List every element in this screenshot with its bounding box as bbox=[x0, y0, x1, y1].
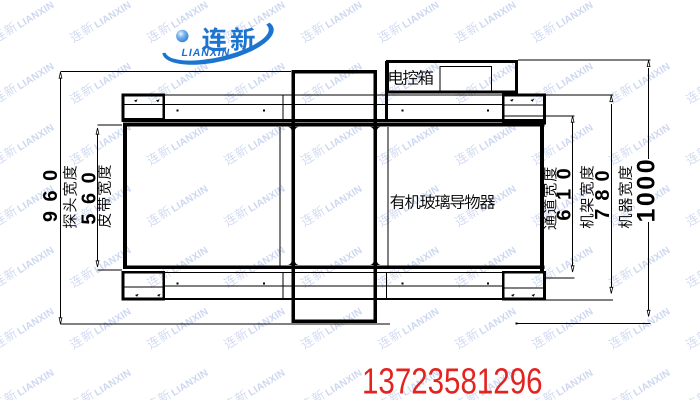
svg-text:LIANXIN: LIANXIN bbox=[478, 61, 519, 92]
svg-text:LIANXIN: LIANXIN bbox=[555, 306, 596, 337]
svg-text:LIANXIN: LIANXIN bbox=[555, 122, 596, 153]
svg-text:LIANXIN: LIANXIN bbox=[324, 245, 365, 276]
svg-text:LIANXIN: LIANXIN bbox=[93, 61, 134, 92]
svg-text:LIANXIN: LIANXIN bbox=[478, 0, 519, 31]
svg-text:LIANXIN: LIANXIN bbox=[478, 306, 519, 337]
svg-text:LIANXIN: LIANXIN bbox=[401, 122, 442, 153]
svg-text:780: 780 bbox=[592, 162, 614, 219]
svg-text:LIANXIN: LIANXIN bbox=[16, 122, 57, 153]
svg-text:LIANXIN: LIANXIN bbox=[247, 245, 288, 276]
svg-text:LIANXIN: LIANXIN bbox=[170, 184, 211, 215]
svg-text:LIANXIN: LIANXIN bbox=[324, 122, 365, 153]
svg-text:LIANXIN: LIANXIN bbox=[632, 61, 673, 92]
svg-text:LIANXIN: LIANXIN bbox=[170, 245, 211, 276]
svg-text:LIANXIN: LIANXIN bbox=[632, 122, 673, 153]
svg-text:LIANXIN: LIANXIN bbox=[632, 245, 673, 276]
svg-text:LIANXIN: LIANXIN bbox=[170, 368, 211, 399]
svg-text:LIANXIN: LIANXIN bbox=[401, 245, 442, 276]
svg-text:LIANXIN: LIANXIN bbox=[401, 0, 442, 31]
svg-text:LIANXIN: LIANXIN bbox=[247, 184, 288, 215]
svg-text:610: 610 bbox=[554, 159, 576, 221]
svg-text:13723581296: 13723581296 bbox=[362, 361, 543, 400]
svg-text:LIANXIN: LIANXIN bbox=[555, 368, 596, 399]
svg-text:LIANXIN: LIANXIN bbox=[632, 368, 673, 399]
svg-text:LIANXIN: LIANXIN bbox=[93, 122, 134, 153]
svg-text:LIANXIN: LIANXIN bbox=[478, 122, 519, 153]
svg-text:LIANXIN: LIANXIN bbox=[324, 184, 365, 215]
svg-text:LIANXIN: LIANXIN bbox=[247, 122, 288, 153]
svg-text:LIANXIN: LIANXIN bbox=[170, 122, 211, 153]
svg-text:LIANXIN: LIANXIN bbox=[324, 368, 365, 399]
svg-text:LIANXIN: LIANXIN bbox=[16, 245, 57, 276]
svg-text:LIANXIN: LIANXIN bbox=[93, 306, 134, 337]
svg-text:LIANXIN: LIANXIN bbox=[180, 47, 231, 59]
svg-text:LIANXIN: LIANXIN bbox=[170, 0, 211, 31]
svg-text:LIANXIN: LIANXIN bbox=[170, 306, 211, 337]
svg-text:LIANXIN: LIANXIN bbox=[247, 61, 288, 92]
svg-text:LIANXIN: LIANXIN bbox=[401, 306, 442, 337]
svg-text:LIANXIN: LIANXIN bbox=[93, 0, 134, 31]
svg-text:LIANXIN: LIANXIN bbox=[170, 61, 211, 92]
svg-text:1000: 1000 bbox=[633, 157, 661, 223]
svg-text:LIANXIN: LIANXIN bbox=[93, 368, 134, 399]
svg-text:LIANXIN: LIANXIN bbox=[632, 306, 673, 337]
svg-text:LIANXIN: LIANXIN bbox=[324, 61, 365, 92]
svg-text:LIANXIN: LIANXIN bbox=[247, 0, 288, 31]
svg-text:LIANXIN: LIANXIN bbox=[16, 306, 57, 337]
svg-text:LIANXIN: LIANXIN bbox=[555, 245, 596, 276]
svg-text:LIANXIN: LIANXIN bbox=[16, 61, 57, 92]
svg-text:960: 960 bbox=[40, 160, 62, 222]
svg-text:LIANXIN: LIANXIN bbox=[247, 368, 288, 399]
svg-text:LIANXIN: LIANXIN bbox=[247, 306, 288, 337]
svg-text:LIANXIN: LIANXIN bbox=[324, 0, 365, 31]
svg-text:LIANXIN: LIANXIN bbox=[401, 184, 442, 215]
svg-text:LIANXIN: LIANXIN bbox=[16, 0, 57, 31]
svg-text:LIANXIN: LIANXIN bbox=[555, 0, 596, 31]
svg-text:LIANXIN: LIANXIN bbox=[555, 61, 596, 92]
svg-text:LIANXIN: LIANXIN bbox=[16, 368, 57, 399]
